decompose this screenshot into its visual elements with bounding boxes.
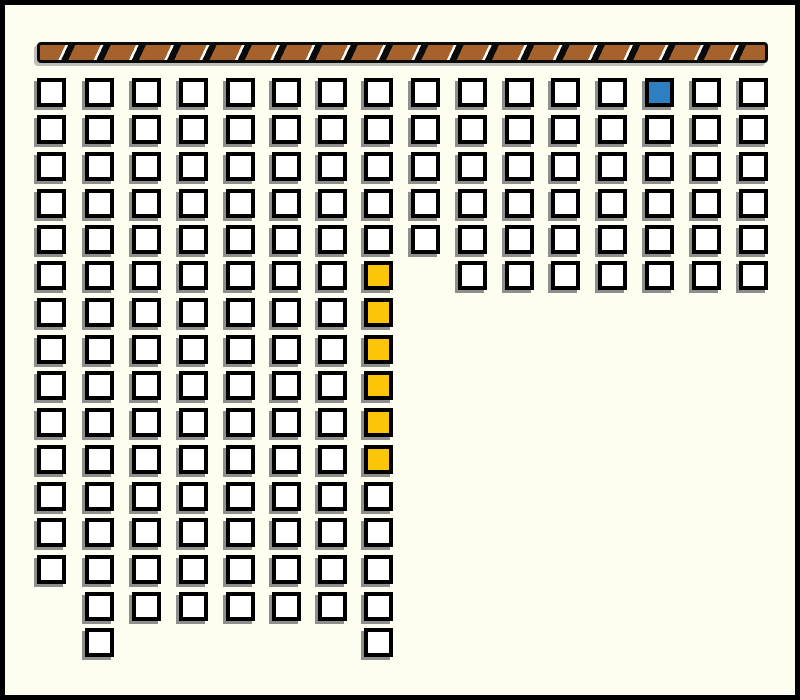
grid-square[interactable] [318, 189, 347, 218]
grid-square[interactable] [179, 78, 208, 107]
yellow-square[interactable] [364, 335, 393, 364]
yellow-square[interactable] [364, 371, 393, 400]
grid-square[interactable] [226, 592, 255, 621]
grid-square[interactable] [179, 225, 208, 254]
grid-square[interactable] [132, 261, 161, 290]
grid-square[interactable] [226, 408, 255, 437]
grid-square[interactable] [364, 628, 393, 657]
grid-square[interactable] [551, 115, 580, 144]
grid-square[interactable] [505, 225, 534, 254]
grid-square[interactable] [551, 152, 580, 181]
grid-square[interactable] [692, 152, 721, 181]
grid-square[interactable] [226, 482, 255, 511]
grid-square[interactable] [37, 445, 66, 474]
grid-square[interactable] [318, 555, 347, 584]
grid-square[interactable] [272, 225, 301, 254]
grid-square[interactable] [226, 518, 255, 547]
grid-square[interactable] [179, 335, 208, 364]
grid-square[interactable] [318, 445, 347, 474]
grid-square[interactable] [318, 482, 347, 511]
grid-square[interactable] [551, 225, 580, 254]
grid-square[interactable] [411, 115, 440, 144]
grid-square[interactable] [132, 298, 161, 327]
grid-square[interactable] [318, 261, 347, 290]
grid-square[interactable] [85, 152, 114, 181]
squares-grid [0, 0, 800, 700]
grid-square[interactable] [179, 152, 208, 181]
grid-square[interactable] [318, 78, 347, 107]
grid-square[interactable] [505, 78, 534, 107]
hatched-beam [37, 42, 768, 63]
grid-square[interactable] [37, 518, 66, 547]
grid-square[interactable] [272, 518, 301, 547]
grid-square[interactable] [132, 152, 161, 181]
yellow-square[interactable] [364, 408, 393, 437]
yellow-square[interactable] [364, 261, 393, 290]
grid-square[interactable] [458, 225, 487, 254]
grid-square[interactable] [739, 261, 768, 290]
grid-square[interactable] [132, 189, 161, 218]
grid-square[interactable] [226, 189, 255, 218]
grid-square[interactable] [739, 152, 768, 181]
grid-square[interactable] [318, 298, 347, 327]
grid-square[interactable] [598, 78, 627, 107]
blue-square[interactable] [645, 78, 674, 107]
grid-square[interactable] [458, 78, 487, 107]
grid-square[interactable] [318, 335, 347, 364]
grid-square[interactable] [458, 189, 487, 218]
grid-square[interactable] [132, 445, 161, 474]
grid-square[interactable] [272, 408, 301, 437]
grid-square[interactable] [505, 189, 534, 218]
grid-square[interactable] [37, 335, 66, 364]
grid-square[interactable] [364, 78, 393, 107]
grid-square[interactable] [179, 298, 208, 327]
grid-square[interactable] [85, 408, 114, 437]
grid-square[interactable] [179, 445, 208, 474]
grid-square[interactable] [645, 152, 674, 181]
grid-square[interactable] [739, 225, 768, 254]
grid-square[interactable] [132, 555, 161, 584]
grid-square[interactable] [505, 261, 534, 290]
grid-square[interactable] [272, 189, 301, 218]
grid-square[interactable] [226, 261, 255, 290]
grid-square[interactable] [85, 482, 114, 511]
grid-square[interactable] [318, 592, 347, 621]
grid-square[interactable] [85, 555, 114, 584]
grid-square[interactable] [411, 152, 440, 181]
grid-square[interactable] [272, 371, 301, 400]
grid-square[interactable] [37, 225, 66, 254]
grid-square[interactable] [458, 261, 487, 290]
grid-square[interactable] [85, 225, 114, 254]
grid-square[interactable] [645, 225, 674, 254]
grid-square[interactable] [272, 115, 301, 144]
grid-square[interactable] [364, 152, 393, 181]
grid-square[interactable] [132, 225, 161, 254]
grid-square[interactable] [318, 518, 347, 547]
grid-square[interactable] [692, 78, 721, 107]
grid-square[interactable] [132, 408, 161, 437]
grid-square[interactable] [132, 482, 161, 511]
grid-square[interactable] [411, 189, 440, 218]
grid-square[interactable] [318, 225, 347, 254]
grid-square[interactable] [505, 115, 534, 144]
grid-square[interactable] [364, 592, 393, 621]
grid-square[interactable] [85, 592, 114, 621]
grid-square[interactable] [179, 482, 208, 511]
grid-square[interactable] [37, 78, 66, 107]
grid-square[interactable] [226, 445, 255, 474]
grid-square[interactable] [318, 152, 347, 181]
grid-square[interactable] [85, 628, 114, 657]
grid-square[interactable] [37, 408, 66, 437]
grid-square[interactable] [226, 225, 255, 254]
grid-square[interactable] [226, 298, 255, 327]
grid-square[interactable] [226, 555, 255, 584]
grid-square[interactable] [318, 408, 347, 437]
grid-square[interactable] [85, 518, 114, 547]
grid-square[interactable] [132, 518, 161, 547]
grid-square[interactable] [272, 335, 301, 364]
grid-square[interactable] [645, 189, 674, 218]
scene-canvas [0, 0, 800, 700]
grid-square[interactable] [364, 115, 393, 144]
grid-square[interactable] [272, 445, 301, 474]
grid-square[interactable] [598, 189, 627, 218]
grid-square[interactable] [179, 115, 208, 144]
grid-square[interactable] [598, 115, 627, 144]
grid-square[interactable] [458, 152, 487, 181]
grid-square[interactable] [739, 115, 768, 144]
grid-square[interactable] [551, 261, 580, 290]
grid-square[interactable] [85, 261, 114, 290]
grid-square[interactable] [272, 78, 301, 107]
grid-square[interactable] [226, 115, 255, 144]
grid-square[interactable] [226, 152, 255, 181]
grid-square[interactable] [551, 189, 580, 218]
grid-square[interactable] [364, 189, 393, 218]
grid-square[interactable] [179, 592, 208, 621]
grid-square[interactable] [551, 78, 580, 107]
grid-square[interactable] [179, 555, 208, 584]
grid-square[interactable] [598, 261, 627, 290]
grid-square[interactable] [85, 78, 114, 107]
grid-square[interactable] [272, 555, 301, 584]
grid-square[interactable] [37, 298, 66, 327]
grid-square[interactable] [739, 189, 768, 218]
grid-square[interactable] [37, 261, 66, 290]
grid-square[interactable] [132, 78, 161, 107]
grid-square[interactable] [318, 115, 347, 144]
grid-square[interactable] [179, 408, 208, 437]
grid-square[interactable] [179, 518, 208, 547]
grid-square[interactable] [226, 78, 255, 107]
grid-square[interactable] [692, 261, 721, 290]
yellow-square[interactable] [364, 298, 393, 327]
grid-square[interactable] [458, 115, 487, 144]
grid-square[interactable] [179, 189, 208, 218]
grid-square[interactable] [272, 482, 301, 511]
grid-square[interactable] [132, 335, 161, 364]
grid-square[interactable] [318, 371, 347, 400]
grid-square[interactable] [598, 152, 627, 181]
grid-square[interactable] [132, 592, 161, 621]
grid-square[interactable] [692, 115, 721, 144]
grid-square[interactable] [179, 261, 208, 290]
grid-square[interactable] [411, 225, 440, 254]
grid-square[interactable] [272, 152, 301, 181]
yellow-square[interactable] [364, 445, 393, 474]
grid-square[interactable] [272, 298, 301, 327]
grid-square[interactable] [37, 189, 66, 218]
grid-square[interactable] [505, 152, 534, 181]
grid-square[interactable] [179, 371, 208, 400]
grid-square[interactable] [364, 225, 393, 254]
grid-square[interactable] [37, 482, 66, 511]
grid-square[interactable] [132, 115, 161, 144]
grid-square[interactable] [37, 152, 66, 181]
grid-square[interactable] [692, 225, 721, 254]
grid-square[interactable] [37, 115, 66, 144]
grid-square[interactable] [411, 78, 440, 107]
grid-square[interactable] [364, 482, 393, 511]
grid-square[interactable] [272, 592, 301, 621]
grid-square[interactable] [85, 298, 114, 327]
grid-square[interactable] [37, 555, 66, 584]
grid-square[interactable] [85, 335, 114, 364]
grid-square[interactable] [598, 225, 627, 254]
grid-square[interactable] [226, 371, 255, 400]
grid-square[interactable] [364, 555, 393, 584]
grid-square[interactable] [226, 335, 255, 364]
grid-square[interactable] [37, 371, 66, 400]
grid-square[interactable] [85, 189, 114, 218]
grid-square[interactable] [85, 115, 114, 144]
grid-square[interactable] [739, 78, 768, 107]
grid-square[interactable] [645, 115, 674, 144]
grid-square[interactable] [692, 189, 721, 218]
grid-square[interactable] [85, 371, 114, 400]
grid-square[interactable] [85, 445, 114, 474]
grid-square[interactable] [645, 261, 674, 290]
grid-square[interactable] [132, 371, 161, 400]
grid-square[interactable] [272, 261, 301, 290]
grid-square[interactable] [364, 518, 393, 547]
